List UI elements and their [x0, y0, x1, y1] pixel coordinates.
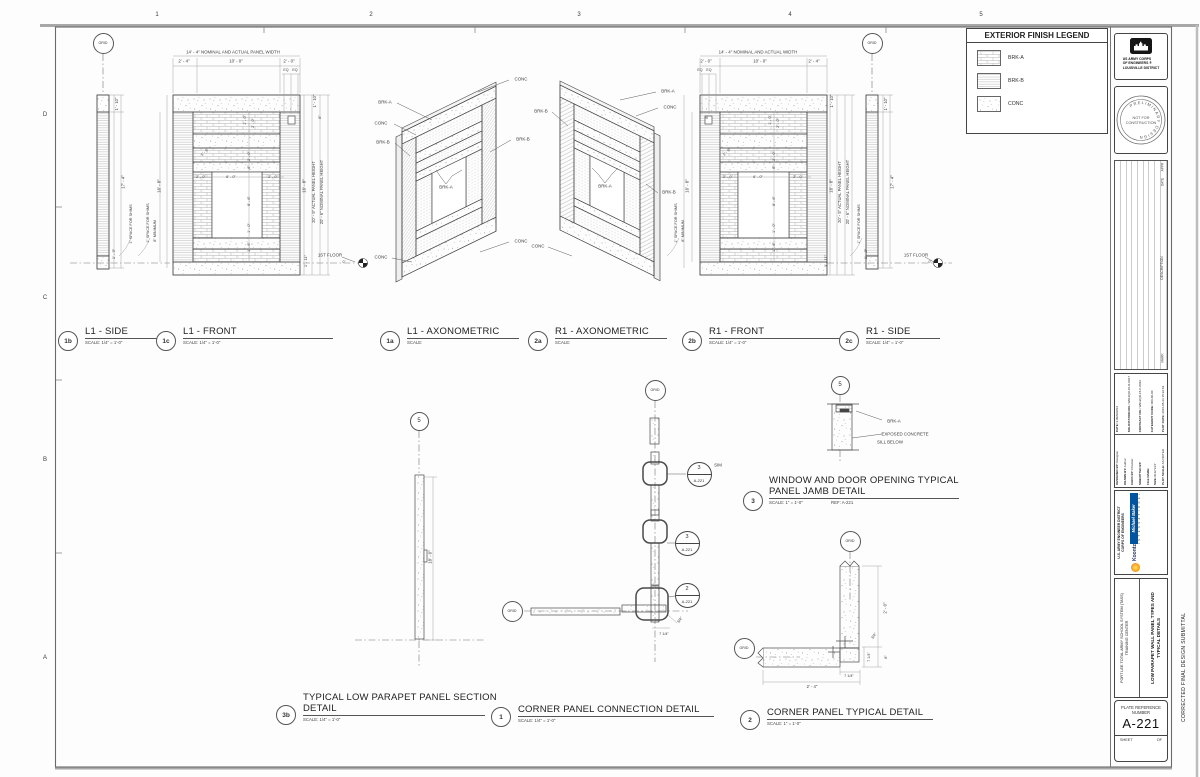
dimension-label: 1" SPACE FOR SHIMS: [674, 203, 678, 242]
view-title: CORNER PANEL TYPICAL DETAIL: [767, 707, 923, 718]
view-scale: SCALE: 1/4" = 1'-0": [709, 340, 746, 345]
dimension-label: 1' - 10": [313, 95, 317, 108]
submittal-note: CORRECTED FINAL DESIGN SUBMITTAL: [1181, 574, 1187, 722]
dimension-label: 1' - 0": [247, 223, 251, 233]
dimension-label: 2' - 0": [283, 60, 294, 65]
view-scale: SCALE: 1/4" = 1'-0": [183, 340, 220, 345]
finish-label: BRK-B: [534, 110, 547, 115]
finish-label: BRK-B: [662, 191, 675, 196]
dimension-label: 1' - 0": [243, 115, 247, 125]
dimension-label: 7 1/4": [844, 674, 854, 678]
detail-callout: 3A-221: [675, 531, 700, 556]
view-title: WINDOW AND DOOR OPENING TYPICAL: [769, 475, 959, 486]
titleblock-field: SIZE: D 22"x34": [1154, 437, 1158, 485]
dimension-label: 1' - 11": [304, 255, 308, 267]
grid-bubble: GRID: [502, 601, 523, 622]
stamp-center-line1: NOT FOR: [1132, 116, 1149, 120]
legend-title: EXTERIOR FINISH LEGEND: [967, 29, 1107, 43]
view-scale: SCALE: 1/4" = 1'-0": [85, 340, 122, 345]
dimension-label: EQ: [706, 69, 711, 73]
finish-label: CONC: [532, 245, 545, 250]
dimension-label: 20' - 5" ACTUAL PANEL HEIGHT: [312, 161, 316, 223]
view-r1-axonometric: [560, 81, 660, 281]
grid-row-label: C: [43, 295, 47, 301]
dimension-label: 20' - 5" ACTUAL PANEL HEIGHT: [838, 161, 842, 223]
view-r1-side: [866, 95, 878, 269]
view-title: TYPICAL LOW PARAPET PANEL SECTION: [303, 692, 497, 703]
detail-corner-typical: [758, 561, 859, 667]
titleblock-field: CATEGORY CODE: 000-00-00: [1151, 376, 1155, 432]
view-number-bubble: 2a: [528, 331, 548, 351]
dimension-label: 1" SPACE FOR SHIMS: [857, 204, 861, 243]
detail-callout: 2A-221: [675, 583, 700, 608]
koontz-sun-icon: [1131, 563, 1140, 572]
district-line2: CORPS OF ENGINEERS: [1121, 493, 1125, 572]
detail-callout: 3A-221: [687, 462, 712, 487]
project-title-box: FORT LEE TOTAL ARMY SCHOOL SYSTEM (TASS)…: [1114, 578, 1168, 698]
view-number-bubble: 1a: [380, 331, 400, 351]
grid-row-label: B: [43, 457, 47, 463]
dimension-label: 1' - 0": [768, 115, 772, 125]
dimension-label: 16' - 8": [158, 179, 163, 193]
view-title-rule: [555, 338, 667, 339]
dimension-label: 1' - 11": [824, 255, 828, 267]
michael-baker-logo: Michael Baker I N T E R N A T I O N A L: [1130, 493, 1141, 544]
dimension-label: 1" SPACE FOR SHIMS: [146, 203, 150, 242]
dimension-label: 7 1/4": [867, 652, 871, 662]
view-title-rule: [183, 338, 333, 339]
dimension-label: 2' - 0": [723, 175, 733, 179]
view-scale: SCALE: 1/4" = 1'-0": [518, 718, 555, 723]
dimension-label: 2' - 0": [700, 60, 711, 65]
view-number-bubble: 3: [743, 491, 763, 511]
titleblock-field: DRAWN BY: Author: [1124, 437, 1128, 485]
koontz-name: Koontz: [1132, 544, 1138, 561]
finish-label: BRK-A: [439, 186, 452, 191]
view-title: R1 - SIDE: [866, 326, 911, 337]
dimension-label: 7 1/4": [659, 632, 669, 636]
view-title-rule: [767, 719, 933, 720]
dimension-label: SIM: [714, 464, 722, 469]
titleblock-field: CHKD BY: Checker: [1131, 437, 1135, 485]
detail-panel-jamb: [827, 404, 859, 450]
dimension-label: 2' - 0": [793, 175, 803, 179]
dimension-label: 2' - 0": [251, 118, 255, 128]
legend-label: BRK-A: [1008, 55, 1024, 61]
dimension-label: 1' - 10": [830, 95, 834, 108]
michael-baker-name: Michael Baker: [1130, 493, 1138, 544]
dimension-label: 1' - 10": [884, 98, 888, 111]
dimension-label: 6' - 0": [226, 175, 236, 179]
dimension-label: 8": [772, 165, 776, 168]
view-title: CORNER PANEL CONNECTION DETAIL: [518, 704, 700, 715]
dimension-label: 8" MINIMUM: [681, 220, 685, 242]
callout-detail-number: 3: [688, 463, 711, 475]
finish-label: BRK-A: [887, 420, 900, 425]
dimension-label: 8' - 6": [772, 196, 776, 206]
dimension-label: 8' - 6": [247, 196, 251, 206]
drawing-sheet: { "sheet": { "grid_cols": ["1","2","3","…: [0, 0, 1200, 777]
finish-label: BRK-B: [376, 141, 389, 146]
grid-row-label: A: [43, 655, 47, 661]
usace-castle-icon: [1129, 37, 1153, 55]
callout-detail-number: 3: [676, 532, 699, 544]
plate-reference-box: PLATE REFERENCE NUMBER A-221 SHEET OF: [1114, 700, 1168, 762]
finish-label: CONC: [664, 106, 677, 111]
dimension-label: 1' - 6": [247, 242, 251, 252]
grid-col-label: 4: [788, 12, 791, 18]
dimension-label: 20' - 6" NOMINAL PANEL HEIGHT: [846, 160, 850, 225]
dimension-label: 14' - 4" NOMINAL AND ACTUAL WIDTH: [719, 51, 798, 56]
dimension-label: 2' - 0": [196, 175, 206, 179]
agency-line: LOUISVILLE DISTRICT: [1123, 66, 1160, 70]
grid-col-label: 1: [155, 12, 158, 18]
dimension-label: 2' - 0": [247, 151, 251, 161]
titleblock-field: SUBMITTED BY:: [1139, 437, 1143, 485]
finish-label: CONC: [375, 256, 388, 261]
exterior-finish-legend: EXTERIOR FINISH LEGEND BRK-ABRK-BCONC: [966, 28, 1108, 134]
view-r1-front: [700, 95, 827, 275]
number-label: NUMBER: [1115, 710, 1167, 715]
stamp-box: PRELIMINARY DESIGN NOT FOR CONSTRUCTION: [1114, 86, 1168, 154]
grid-bubble: GRID: [840, 531, 861, 552]
callout-sheet-number: A-221: [694, 475, 705, 486]
view-title: DETAIL: [303, 703, 337, 714]
dimension-label: 1ST FLOOR: [904, 254, 928, 259]
view-number-bubble: 1b: [58, 331, 78, 351]
view-l1-side: [97, 95, 109, 269]
rev-header: DESCRIPTION: [1161, 256, 1165, 279]
section-bubble: 5: [831, 376, 850, 395]
callout-sheet-number: A-221: [682, 596, 693, 607]
dimension-label: EQ: [697, 69, 702, 73]
dimension-label: 17' - 4": [122, 175, 127, 189]
dimension-label: EQ: [283, 69, 288, 73]
rev-header: MARK: [1161, 353, 1164, 362]
grid-col-label: 2: [369, 12, 372, 18]
dimension-label: 20' - 6" NOMINAL PANEL HEIGHT: [320, 160, 324, 225]
view-scale: SCALE: 1" = 1'-0": [767, 721, 801, 726]
titleblock-field: SOLICITATION NO.: W912QR-15-R-0017: [1128, 376, 1132, 432]
view-ref: REF: A-221: [831, 500, 853, 505]
dimension-label: 8": [318, 115, 322, 118]
view-scale: SCALE: 1" = 1'-0": [769, 500, 803, 505]
dimension-label: 17' - 4": [891, 175, 896, 189]
legend-swatch-brkB: [977, 73, 1001, 89]
legend-swatch-conc: [977, 96, 1001, 112]
dimension-label: 2' - 4": [807, 685, 818, 689]
dimension-label: 0": [342, 261, 345, 265]
dimension-label: 2' - 0": [268, 175, 278, 179]
dimension-label: EQ: [292, 69, 297, 73]
titleblock-field: DATE: 31MAR2016: [1116, 376, 1120, 432]
dimension-label: 2' - 4": [808, 60, 819, 65]
sheet-title-line2: TYPICAL DETAILS: [1156, 579, 1162, 697]
view-number-bubble: 2b: [682, 331, 702, 351]
legend-item: BRK-B: [977, 73, 1107, 89]
titleblock-fields: DESIGNED BY: DesignerDRAWN BY: AuthorCHK…: [1114, 373, 1168, 488]
view-title-rule: [866, 338, 940, 339]
legend-item: CONC: [977, 96, 1107, 112]
dimension-label: 6' - 0": [753, 175, 763, 179]
legend-label: BRK-B: [1008, 78, 1024, 84]
view-title: R1 - AXONOMETRIC: [555, 326, 649, 337]
project-line2: TRAINING CENTER: [1125, 579, 1130, 697]
dimension-label: 8": [705, 115, 709, 118]
finish-label: BRK-A: [661, 90, 674, 95]
view-title-rule: [769, 498, 959, 499]
dimension-label: SILL BELOW: [877, 441, 903, 446]
view-title-rule: [85, 338, 163, 339]
view-l1-axonometric: [396, 82, 496, 282]
legend-label: CONC: [1008, 101, 1023, 107]
michael-baker-sub: I N T E R N A T I O N A L: [1138, 493, 1141, 544]
finish-label: CONC: [375, 122, 388, 127]
dimension-label: 8": [884, 655, 888, 658]
firm-box: U.S. ARMY ENGINEER DISTRICT CORPS OF ENG…: [1114, 490, 1168, 575]
of-label: OF: [1157, 738, 1162, 742]
dimension-label: 14' - 4" NOMINAL AND ACTUAL PANEL WIDTH: [186, 51, 280, 56]
grid-row-label: D: [43, 112, 47, 118]
finish-label: BRK-A: [598, 185, 611, 190]
dimension-label: 16' - 8": [686, 179, 691, 193]
view-scale: SCALE: 1/4" = 1'-0": [866, 340, 903, 345]
dimension-label: 1' - 6": [772, 242, 776, 252]
view-title-rule: [407, 338, 519, 339]
preliminary-stamp-icon: PRELIMINARY DESIGN NOT FOR CONSTRUCTION: [1115, 87, 1167, 153]
agency-box: US ARMY CORPS OF ENGINEERS ® LOUISVILLE …: [1114, 33, 1168, 80]
dimension-label: EXPOSED CONCRETE: [881, 433, 928, 438]
grid-bubble: GRID: [645, 380, 666, 401]
dimension-label: 2' - 0": [776, 118, 780, 128]
legend-swatch-brkA: [977, 50, 1001, 66]
section-bubble: 5: [410, 412, 429, 431]
titleblock-field: CONTRACT NO.: W912QR-15-C-0042: [1139, 376, 1143, 432]
finish-label: CONC: [515, 78, 528, 83]
detail-corner-connection: [531, 418, 668, 622]
grid-bubble: GRID: [93, 33, 114, 54]
view-title: L1 - FRONT: [183, 326, 237, 337]
grid-bubble: GRID: [734, 638, 755, 659]
view-scale: SCALE:: [407, 340, 422, 345]
dimension-label: 2' - 4": [178, 60, 189, 65]
dimension-label: 8": [247, 165, 251, 168]
view-number-bubble: 1: [491, 707, 511, 727]
view-l1-front: [173, 95, 300, 275]
dimension-label: 1' - 3": [112, 249, 116, 259]
dimension-label: 18' - 0": [429, 550, 434, 564]
plate-number: A-221: [1115, 716, 1167, 731]
view-title: R1 - FRONT: [709, 326, 764, 337]
titleblock-field: DESIGNED BY: Designer: [1116, 437, 1120, 485]
dimension-label: 2' - 0": [884, 602, 889, 613]
grid-col-label: 3: [577, 12, 580, 18]
view-number-bubble: 2c: [839, 331, 859, 351]
view-scale: SCALE: 1/4" = 1'-0": [303, 717, 340, 722]
dimension-label: 8" MINIMUM: [153, 220, 157, 242]
view-title: L1 - SIDE: [85, 326, 128, 337]
view-number-bubble: 1c: [156, 331, 176, 351]
dimension-label: 16' - 8": [830, 179, 835, 193]
view-title: PANEL JAMB DETAIL: [769, 486, 866, 497]
grid-col-label: 5: [979, 12, 982, 18]
dimension-label: 2' - 0": [772, 151, 776, 161]
dimension-label: 1" SPACE FOR SHIMS: [129, 204, 133, 243]
view-number-bubble: 3b: [276, 705, 296, 725]
titleblock-field: FILE NAME:: [1147, 437, 1151, 485]
view-title-rule: [518, 716, 714, 717]
dimension-label: 10' - 0": [229, 60, 243, 65]
titleblock-field: PLOT DATE: 2016-05-23 15:22:19: [1162, 376, 1166, 432]
view-title-rule: [709, 338, 841, 339]
dimension-label: 0": [928, 261, 931, 265]
dimension-label: 1' - 0": [772, 223, 776, 233]
dimension-label: 10' - 0": [753, 60, 767, 65]
dimension-label: 1' - 3": [864, 249, 868, 259]
titleblock-field: PLOT SCALE: AS NOTED: [1162, 437, 1166, 485]
view-number-bubble: 2: [740, 710, 760, 730]
grid-bubble: GRID: [862, 33, 883, 54]
callout-sheet-number: A-221: [682, 544, 693, 555]
view-title: L1 - AXONOMETRIC: [407, 326, 499, 337]
rev-header: DATE: [1161, 178, 1164, 186]
finish-label: BRK-B: [516, 138, 529, 143]
callout-detail-number: 2: [676, 584, 699, 596]
sheet-label: SHEET: [1120, 738, 1133, 742]
stamp-center-line2: CONSTRUCTION: [1126, 121, 1157, 125]
legend-item: BRK-A: [977, 50, 1107, 66]
dimension-label: 1ST FLOOR: [318, 254, 342, 259]
finish-label: BRK-A: [378, 101, 391, 106]
detail-parapet-section: [415, 475, 427, 639]
dimension-label: 1' - 10": [115, 98, 119, 111]
view-scale: SCALE:: [555, 340, 570, 345]
dimension-label: 16' - 8": [303, 179, 308, 193]
view-title-rule: [303, 715, 485, 716]
rev-header: APPR: [1161, 163, 1164, 172]
finish-label: CONC: [515, 240, 528, 245]
koontz-logo: Koontz: [1131, 544, 1140, 572]
